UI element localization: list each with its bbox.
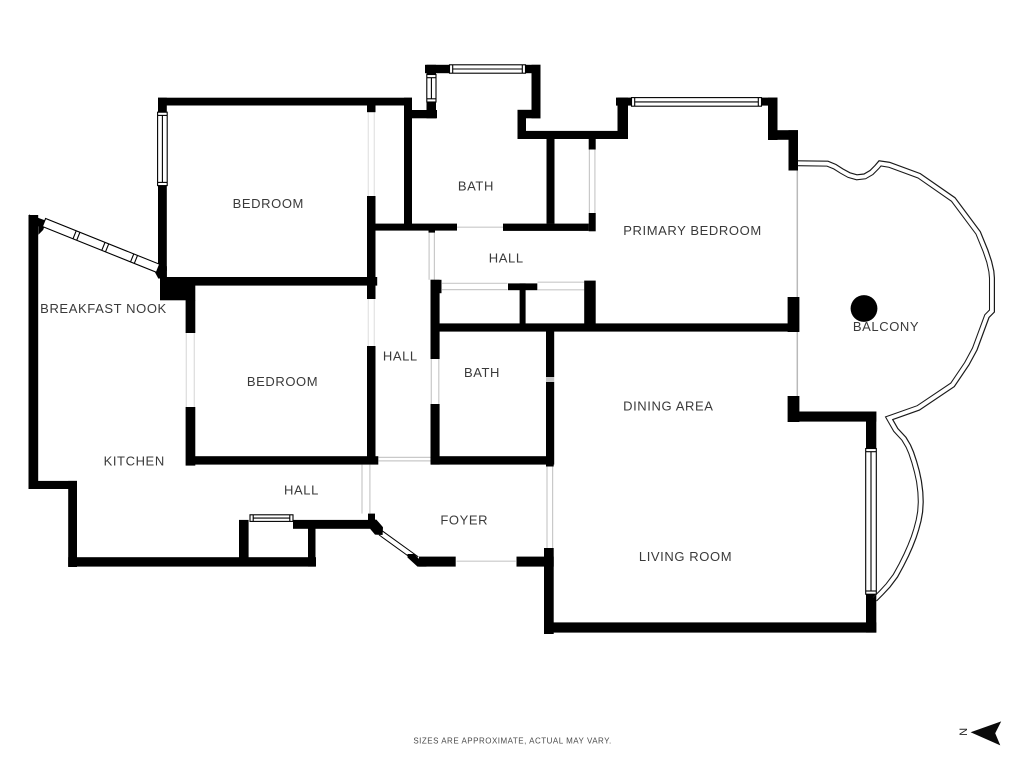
svg-text:N: N [957,728,969,736]
svg-text:BALCONY: BALCONY [853,319,919,334]
svg-text:BEDROOM: BEDROOM [233,196,304,211]
svg-text:KITCHEN: KITCHEN [104,454,165,469]
svg-text:FOYER: FOYER [440,513,488,528]
svg-text:LIVING ROOM: LIVING ROOM [639,549,732,564]
svg-text:BATH: BATH [464,365,500,380]
svg-text:BREAKFAST NOOK: BREAKFAST NOOK [40,301,167,316]
svg-text:DINING AREA: DINING AREA [623,399,713,414]
svg-text:HALL: HALL [383,349,418,364]
svg-text:BATH: BATH [458,179,494,194]
svg-text:HALL: HALL [489,251,524,266]
svg-text:BEDROOM: BEDROOM [247,374,318,389]
svg-text:SIZES ARE APPROXIMATE, ACTUAL: SIZES ARE APPROXIMATE, ACTUAL MAY VARY. [413,737,611,746]
svg-text:HALL: HALL [284,482,319,497]
svg-text:PRIMARY BEDROOM: PRIMARY BEDROOM [623,223,762,238]
